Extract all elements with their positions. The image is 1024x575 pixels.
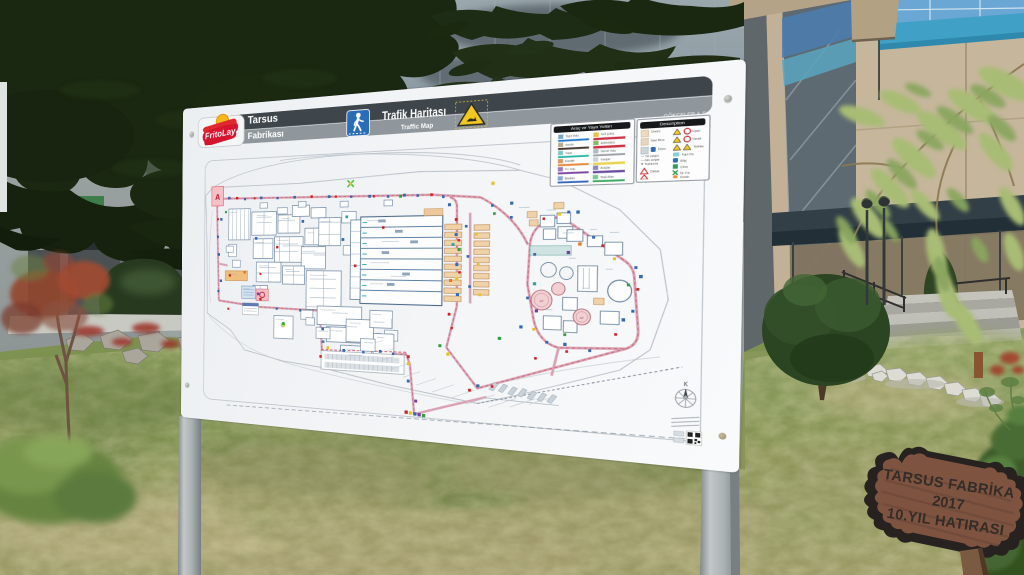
- svg-text:Demir Yolu: Demir Yolu: [601, 149, 618, 154]
- svg-text:Yangın: Yangın: [600, 159, 611, 162]
- svg-text:Tehlike: Tehlike: [693, 146, 705, 150]
- svg-text:Forklift: Forklift: [565, 159, 575, 164]
- svg-text:Depo: Depo: [658, 148, 667, 151]
- svg-text:Çıkış: Çıkış: [680, 166, 688, 169]
- svg-text:İlk Yrd: İlk Yrd: [680, 171, 689, 176]
- svg-text:Yaya: Yaya: [565, 152, 573, 155]
- svg-text:Araçlar: Araçlar: [600, 166, 611, 171]
- svg-text:Durak: Durak: [680, 176, 689, 179]
- svg-text:Ambulans: Ambulans: [601, 140, 615, 145]
- svg-text:Yasak: Yasak: [692, 138, 701, 141]
- svg-text:İdari Bina: İdari Bina: [651, 138, 666, 143]
- svg-text:Uyarı: Uyarı: [692, 130, 701, 133]
- svg-text:Üretim: Üretim: [651, 129, 661, 134]
- svg-text:Servis: Servis: [565, 143, 574, 148]
- svg-text:Dikkat: Dikkat: [650, 169, 660, 174]
- svg-text:K: K: [684, 382, 689, 388]
- svg-text:A: A: [215, 194, 220, 202]
- svg-text:Yeşil Alan: Yeşil Alan: [600, 175, 615, 180]
- svg-text:Tır Yolu: Tır Yolu: [565, 167, 577, 172]
- svg-text:Taşıt Yolu: Taşıt Yolu: [565, 134, 579, 139]
- svg-text:Acil Çıkış: Acil Çıkış: [601, 132, 614, 137]
- svg-text:Bisiklet: Bisiklet: [565, 176, 575, 181]
- svg-text:Kapı No: Kapı No: [682, 154, 695, 158]
- svg-text:Bilgi: Bilgi: [680, 160, 687, 163]
